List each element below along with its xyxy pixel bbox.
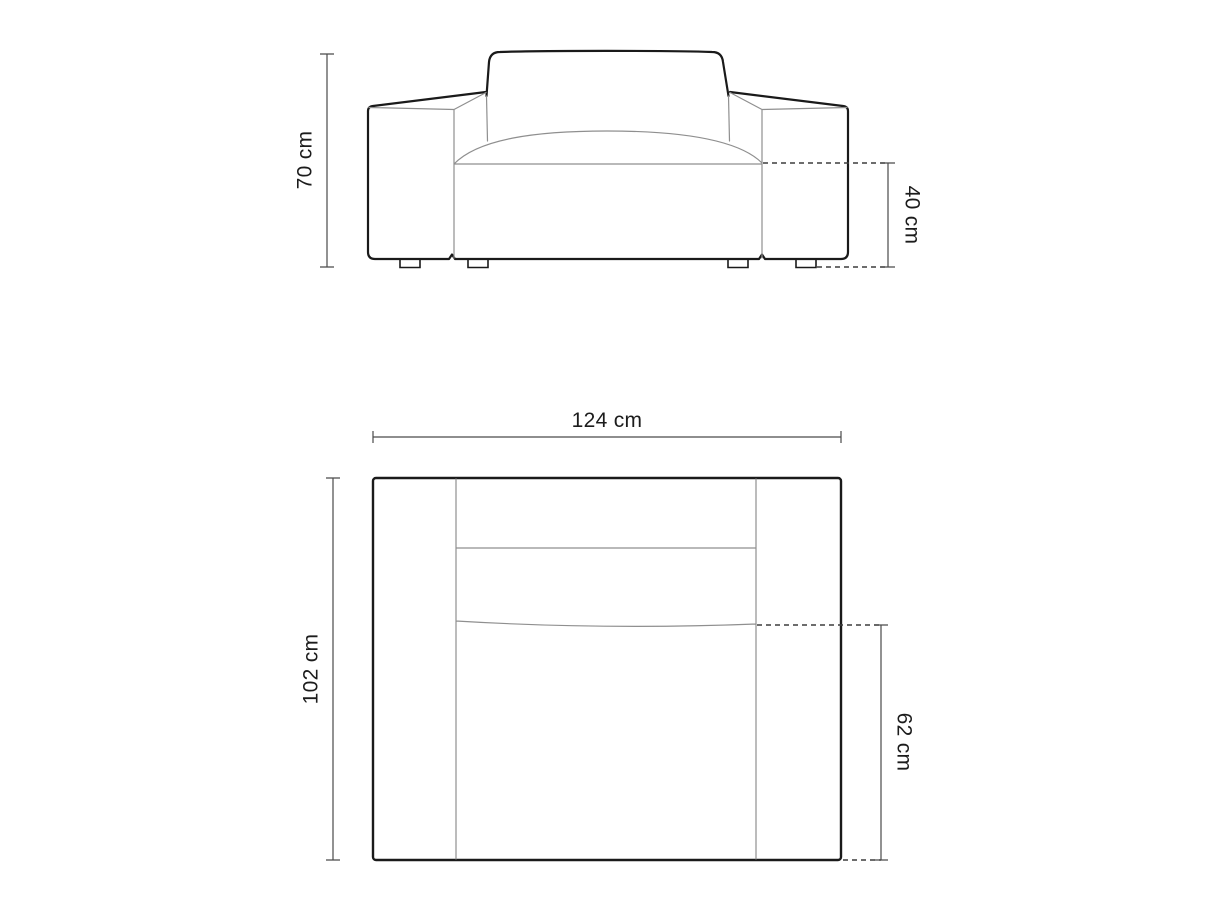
armchair-body-outline xyxy=(368,92,848,259)
seat-and-arm-detail-lines xyxy=(369,93,847,259)
seat-depth-dimension-label: 62 cm xyxy=(892,713,915,772)
seat-height-extension-lines xyxy=(763,163,888,267)
width-dimension-label: 124 cm xyxy=(572,409,643,432)
seat-height-dimension-label: 40 cm xyxy=(900,186,923,245)
armchair-dimension-drawing: 70 cm 40 cm 124 cm 102 cm xyxy=(0,0,1214,910)
depth-dimension-label: 102 cm xyxy=(300,634,323,705)
width-dimension-line xyxy=(373,431,841,443)
depth-dimension-line xyxy=(326,478,340,860)
seat-depth-dimension-line xyxy=(874,625,888,860)
seat-height-dimension-line xyxy=(881,163,895,267)
front-legs xyxy=(400,260,816,268)
front-elevation-view: 70 cm 40 cm xyxy=(294,51,924,268)
backrest-outline xyxy=(487,51,729,96)
dimension-diagram-page: 70 cm 40 cm 124 cm 102 cm xyxy=(0,0,1214,910)
plan-outline xyxy=(373,478,841,860)
top-plan-view: 124 cm 102 cm 62 cm xyxy=(300,409,916,860)
height-dimension-label: 70 cm xyxy=(294,131,317,190)
height-dimension-line xyxy=(320,54,334,267)
